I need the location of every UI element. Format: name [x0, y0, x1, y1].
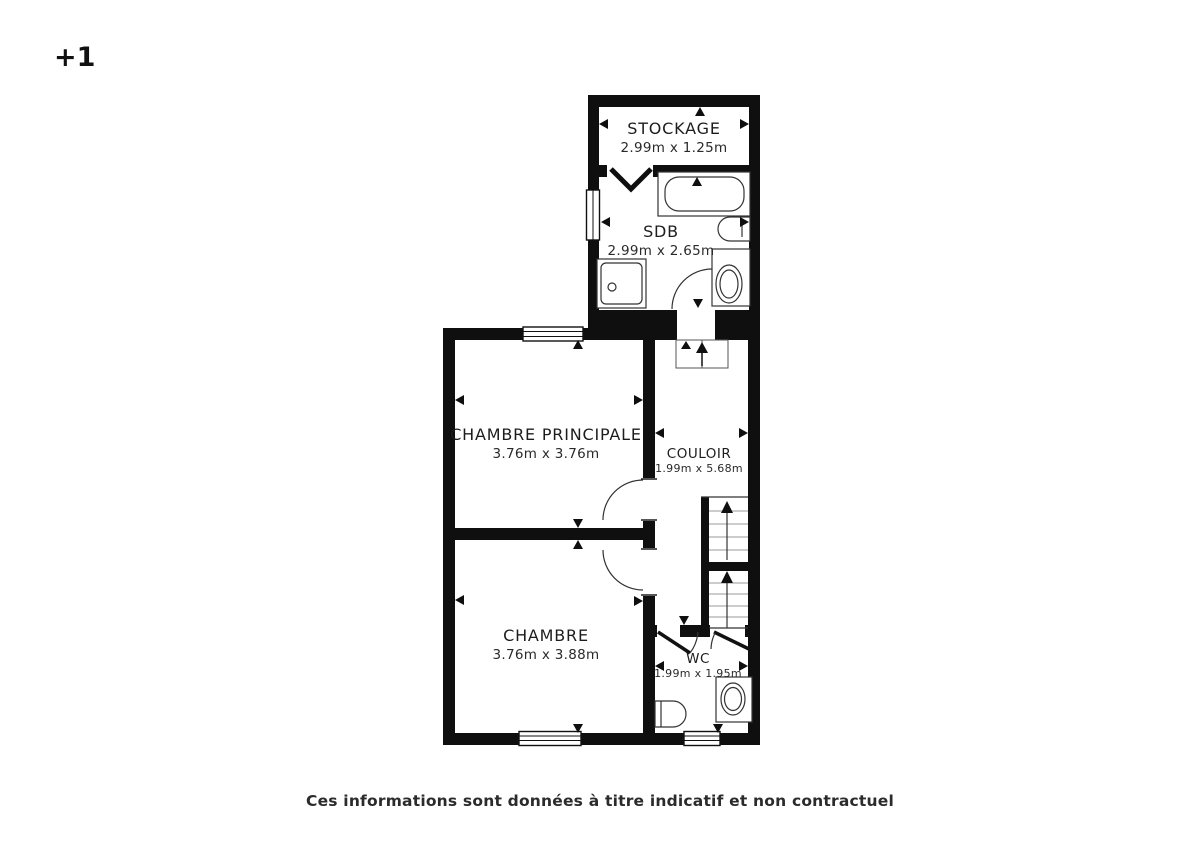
wall-wc-top-c [745, 625, 760, 637]
room-dims-stockage: 2.99m x 1.25m [621, 140, 728, 156]
disclaimer-text: Ces informations sont données à titre in… [0, 792, 1200, 810]
wall-stairs-landing [701, 562, 748, 571]
arrow-stockage-right [740, 119, 749, 129]
arrow-stockage-top [695, 107, 705, 116]
room-name-chambre-principale: CHAMBRE PRINCIPALE [450, 425, 642, 444]
floorplan-drawing: STOCKAGE 2.99m x 1.25m SDB 2.99m x 2.65m… [0, 0, 1200, 849]
room-label-chambre: CHAMBRE 3.76m x 3.88m [493, 626, 600, 663]
wall-wc-top-a [643, 625, 657, 637]
arrow-cp-right [634, 395, 643, 405]
arrow-cp-bottom [573, 519, 583, 528]
room-label-wc: WC 1.99m x 1.95m [654, 651, 742, 680]
arrow-stockage-left [599, 119, 608, 129]
stairs-landing-steps [676, 340, 728, 368]
window-chambre-bottom [519, 732, 581, 746]
room-name-sdb: SDB [643, 222, 679, 241]
room-dims-sdb: 2.99m x 2.65m [608, 243, 715, 259]
door-stairs-base [711, 632, 749, 649]
arrow-sdb-door [693, 299, 703, 308]
arrow-sdb-left [601, 217, 610, 227]
toilet-wc [716, 677, 752, 722]
arrow-couloir-bottom [679, 616, 689, 625]
room-name-wc: WC [686, 651, 710, 667]
arrow-cp-left [455, 395, 464, 405]
window-wc-bottom [684, 732, 720, 746]
stairs-up-arrow [721, 571, 733, 583]
room-name-chambre: CHAMBRE [503, 626, 589, 645]
stairs-up-arrow [721, 501, 733, 513]
window-sdb-left [587, 190, 600, 240]
bathtub [658, 172, 750, 216]
door-arc-sdb [672, 269, 712, 309]
room-dims-chambre-principale: 3.76m x 3.76m [493, 446, 600, 462]
room-label-stockage: STOCKAGE 2.99m x 1.25m [621, 119, 728, 156]
arrow-chambre-right [634, 596, 643, 606]
room-name-stockage: STOCKAGE [627, 119, 720, 138]
room-label-sdb: SDB 2.99m x 2.65m [608, 222, 715, 259]
floorplan-page: +1 [0, 0, 1200, 849]
room-dims-wc: 1.99m x 1.95m [654, 667, 742, 680]
opening-cp-door [641, 478, 657, 521]
arrow-couloir-right [739, 428, 748, 438]
room-label-chambre-principale: CHAMBRE PRINCIPALE 3.76m x 3.76m [450, 425, 642, 462]
room-label-couloir: COULOIR 1.99m x 5.68m [655, 446, 743, 475]
wall-upper-right [749, 95, 760, 330]
wall-bedroom-divider [443, 528, 645, 540]
wall-stockage-top [588, 95, 760, 107]
window-cp-top [523, 327, 583, 341]
shower-tray [597, 259, 646, 308]
opening-sdb-couloir [677, 308, 715, 342]
arrow-chambre-left [455, 595, 464, 605]
arrow-couloir-left [655, 428, 664, 438]
door-arc-chambre-principale [603, 480, 643, 520]
room-name-couloir: COULOIR [667, 446, 731, 462]
room-dims-couloir: 1.99m x 5.68m [655, 462, 743, 475]
door-arc-chambre [603, 550, 643, 590]
toilet-sdb [712, 249, 750, 306]
sink-wc [655, 701, 686, 727]
opening-chambre-door [641, 548, 657, 596]
arrow-chambre-top [573, 540, 583, 549]
room-dims-chambre: 3.76m x 3.88m [493, 647, 600, 663]
